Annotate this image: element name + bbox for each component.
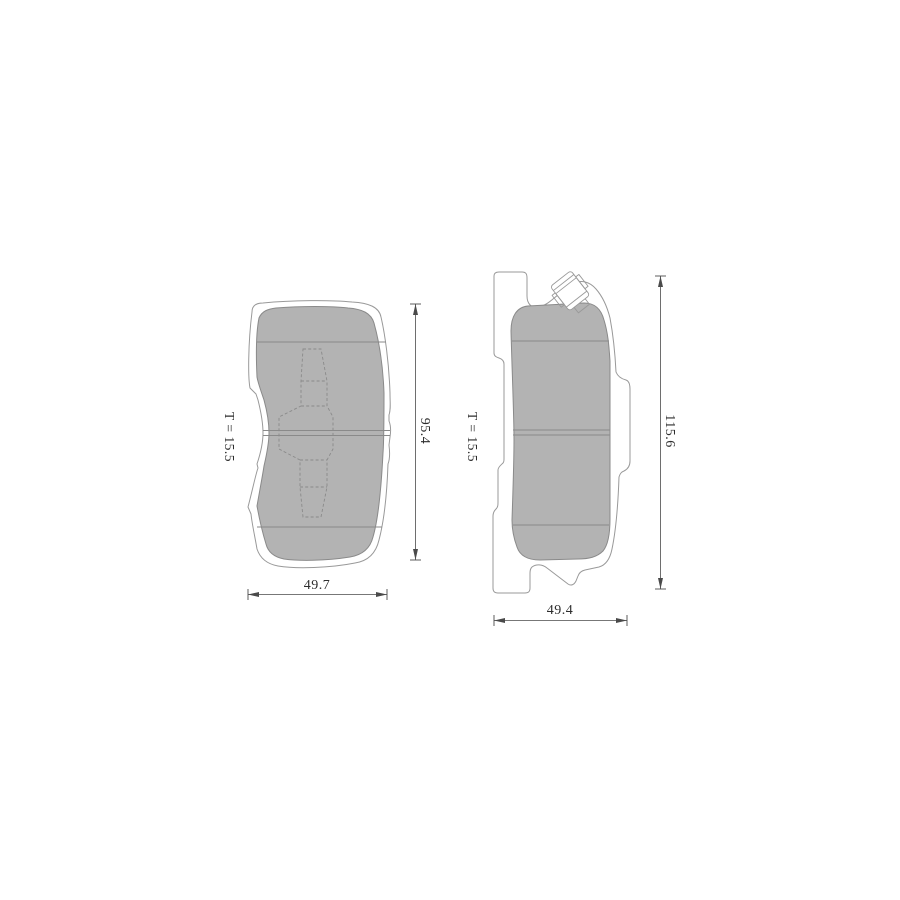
- brake-pad-side-view: T = 15.5 115.6 49.4: [465, 268, 677, 626]
- right-width-dimension-value: 49.4: [547, 603, 574, 618]
- right-height-dimension: 115.6: [655, 276, 677, 589]
- right-height-dimension-value: 115.6: [662, 414, 677, 447]
- brake-pad-front-view: T = 15.5 95.4 49.7: [222, 301, 432, 600]
- left-thickness-label: T = 15.5: [222, 412, 237, 462]
- left-height-dimension-value: 95.4: [417, 418, 432, 445]
- left-width-dimension: 49.7: [248, 578, 387, 600]
- brake-pad-drawing: T = 15.5 95.4 49.7: [0, 0, 900, 900]
- technical-drawing-canvas: T = 15.5 95.4 49.7: [0, 0, 900, 900]
- left-height-dimension: 95.4: [410, 304, 432, 560]
- friction-surface-right: [511, 303, 610, 560]
- right-thickness-label: T = 15.5: [465, 412, 480, 462]
- right-width-dimension: 49.4: [494, 603, 627, 626]
- friction-surface: [256, 307, 384, 561]
- left-width-dimension-value: 49.7: [304, 578, 331, 593]
